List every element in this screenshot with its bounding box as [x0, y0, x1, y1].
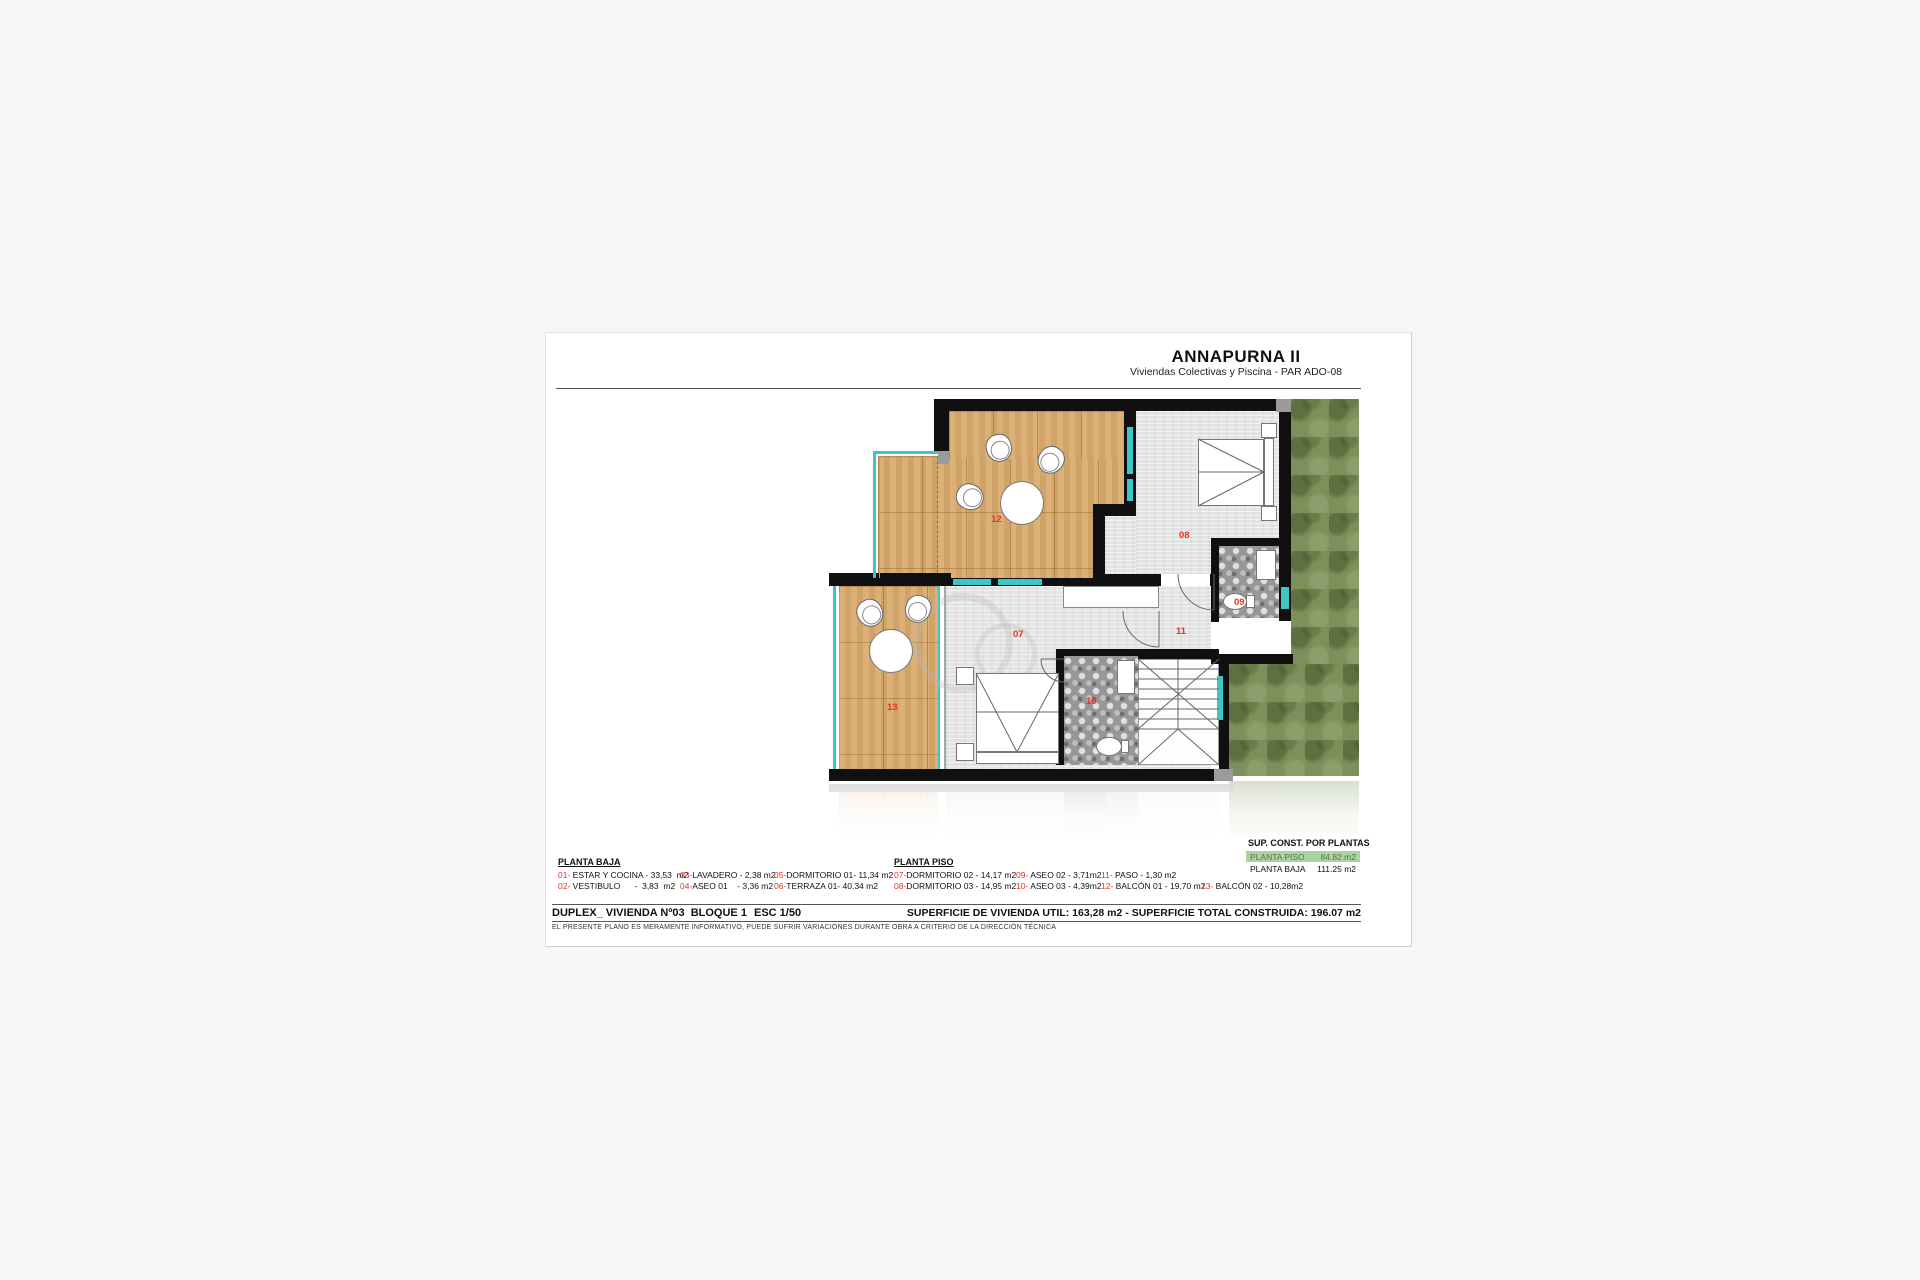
wall-notch-bottom	[1211, 654, 1293, 664]
garden-lower	[1229, 664, 1359, 776]
bed-room07	[976, 673, 1059, 752]
window-bath09-right	[1281, 587, 1289, 609]
toilet-tank-bath09	[1246, 595, 1255, 608]
legend-item-10: 10- ASEO 03 - 4,39m2	[1016, 881, 1102, 891]
nightstand-room08-b	[1261, 506, 1277, 521]
nightstand-room07-b	[956, 743, 974, 761]
railing-balcony12-left-inner	[879, 457, 880, 578]
table-balcony12	[1000, 481, 1044, 525]
window-room07-top-a	[953, 579, 991, 585]
legend-item-07: 07-DORMITORIO 02 - 14,17 m2	[894, 870, 1016, 880]
room-label-12: 12	[991, 514, 1002, 525]
plan-reflection	[829, 781, 1361, 841]
window-stairs-right	[1217, 676, 1223, 720]
staircase	[1138, 659, 1219, 765]
bed-room08-headboard	[1264, 438, 1274, 506]
sup-row-piso-value: 84.82 m2	[1250, 852, 1356, 862]
legend-item-01: 01- ESTAR Y COCINA - 33,53 m2	[558, 870, 688, 880]
railing-balcony13-left	[833, 586, 836, 769]
sup-table-header: SUP. CONST. POR PLANTAS	[1248, 838, 1360, 848]
screenshot-root: { "header": { "title": "ANNAPURNA II", "…	[0, 0, 1920, 1280]
legend-item-04: 04-ASEO 01 - 3,36 m2	[680, 881, 773, 891]
title-rule	[556, 388, 1361, 389]
terrace-notch	[1219, 621, 1279, 654]
footer-rule-bottom	[552, 921, 1361, 922]
legend-item-12: 12- BALCÓN 01 - 19,70 m2	[1101, 881, 1205, 891]
legend-baja-header: PLANTA BAJA	[558, 857, 621, 867]
window-room08-left-a	[1127, 427, 1133, 474]
wall-bath09-top	[1211, 538, 1283, 546]
wall-stairs-top	[1138, 649, 1219, 659]
nightstand-room07-a	[956, 667, 974, 685]
wardrobe-room07	[1063, 586, 1159, 608]
bed-room07-headboard	[976, 752, 1059, 764]
toilet-tank-bath10	[1121, 740, 1129, 753]
room-label-13: 13	[887, 702, 898, 713]
room-label-07: 07	[1013, 629, 1024, 640]
sink-bath09	[1256, 550, 1276, 580]
legend-item-03: 03-LAVADERO - 2,38 m2	[680, 870, 776, 880]
wall-top	[934, 399, 1291, 411]
railing-balcony12-left	[873, 451, 876, 578]
sink-bath10	[1117, 660, 1135, 694]
legend-item-09: 09- ASEO 02 - 3,71m2	[1016, 870, 1102, 880]
plan-sheet: ANNAPURNA II Viviendas Colectivas y Pisc…	[545, 332, 1412, 947]
room-label-11: 11	[1176, 626, 1186, 637]
footer-scale: ESC 1/50	[754, 907, 801, 919]
window-room07-top-b	[998, 579, 1042, 585]
wall-cap-bottom	[1214, 769, 1233, 781]
room-label-09: 09	[1234, 597, 1245, 608]
window-room08-left-b	[1127, 479, 1133, 501]
railing-balcony13-left-inner	[839, 592, 840, 769]
bed-room08	[1198, 439, 1264, 506]
garden-upper	[1291, 399, 1359, 664]
footer-superficie: SUPERFICIE DE VIVIENDA UTIL: 163,28 m2 -…	[861, 907, 1361, 919]
legend-item-05: 05-DORMITORIO 01- 11,34 m2	[774, 870, 893, 880]
legend-item-11: 11- PASO - 1,30 m2	[1101, 870, 1176, 880]
nightstand-room08-a	[1261, 423, 1277, 438]
room-08-floor-ext	[1105, 516, 1136, 574]
wall-cap-right	[1276, 399, 1291, 412]
legend-item-02: 02- VESTIBULO - 3,83 m2	[558, 881, 675, 891]
footer-project: DUPLEX_ VIVIENDA Nº03 BLOQUE 1	[552, 907, 747, 919]
railing-balcony12-top	[873, 451, 938, 454]
wall-room08-bottom	[1093, 574, 1161, 586]
wall-bath09-left	[1211, 538, 1219, 622]
legend-item-06: 06-TERRAZA 01- 40.34 m2	[774, 881, 878, 891]
toilet-bath10	[1096, 737, 1122, 756]
room-label-10: 10	[1086, 696, 1097, 707]
legend-item-13: 13- BALCÓN 02 - 10,28m2	[1201, 881, 1303, 891]
wall-cap-left	[938, 451, 949, 464]
wall-top-left-stub	[934, 399, 949, 451]
footer-rule-top	[552, 904, 1361, 905]
legend-item-08: 08-DORMITORIO 03 - 14,95 m2	[894, 881, 1016, 891]
railing-balcony12-top-inner	[879, 457, 938, 458]
table-balcony13	[869, 629, 913, 673]
wall-bath10-top	[1056, 649, 1138, 656]
sheet-subtitle: Viviendas Colectivas y Piscina - PAR ADO…	[1071, 366, 1401, 378]
wall-step-v	[1093, 504, 1105, 578]
floor-plan: 12 08 07 11 09 10 13	[829, 397, 1361, 781]
wall-balcony13-top	[829, 573, 951, 586]
sup-row-baja-value: 111.25 m2	[1250, 864, 1356, 874]
balcony-12-overhang-line	[937, 456, 938, 578]
room-label-08: 08	[1179, 530, 1190, 541]
wall-bottom	[829, 769, 1233, 781]
footer-disclaimer: EL PRESENTE PLANO ES MERAMENTE INFORMATI…	[552, 924, 1056, 931]
legend-piso-header: PLANTA PISO	[894, 857, 954, 867]
balcony-12-floor-upper	[949, 411, 1124, 459]
sheet-title: ANNAPURNA II	[1086, 347, 1386, 367]
